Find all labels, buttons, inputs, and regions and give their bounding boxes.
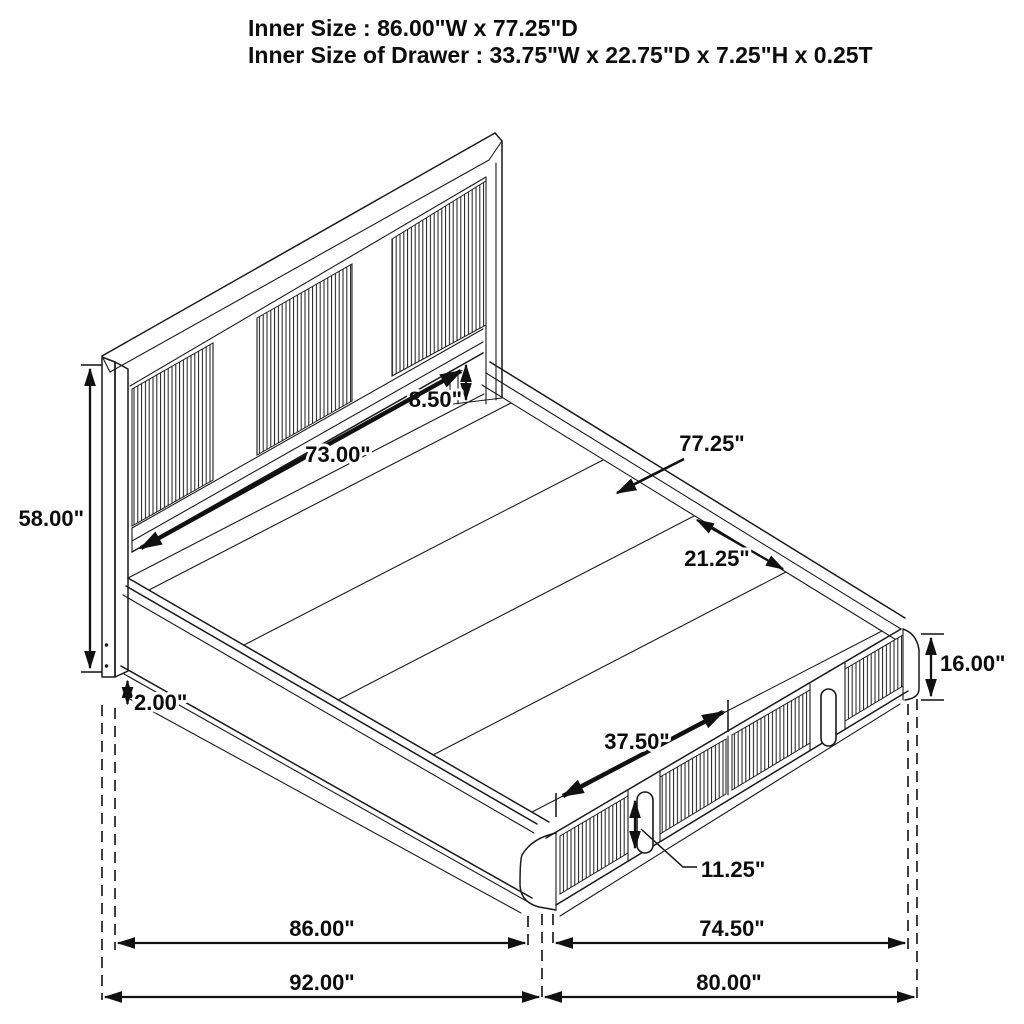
headboard-slat-panel-left: [132, 343, 213, 526]
right-rail-top-edge: [490, 362, 905, 618]
dim-foot-inner-width: 74.50": [556, 916, 905, 943]
dim-label-1125: 11.25": [701, 857, 765, 882]
dim-overall-depth: 80.00": [545, 970, 914, 997]
title-line-2: Inner Size of Drawer : 33.75"W x 22.75"D…: [248, 42, 873, 68]
dim-plank-width: 21.25": [684, 520, 783, 571]
front-leg-outline: [520, 833, 556, 910]
post-peg-dot: [105, 664, 108, 667]
top-rail-bevel-inner: [489, 141, 502, 160]
headboard-left-post: [102, 357, 128, 677]
drawer-handle-right: [821, 689, 836, 746]
drawer-slats: [560, 796, 628, 894]
dim-tick: [81, 365, 102, 672]
left-side-rail: [121, 586, 537, 913]
dim-label-2125: 21.25": [684, 546, 749, 571]
dim-label-86: 86.00": [289, 916, 354, 941]
drawer-handle-left: [637, 792, 653, 853]
bed-dimension-diagram: Inner Size : 86.00"W x 77.25"D Inner Siz…: [0, 0, 1024, 1024]
dim-label-2: 2.00": [134, 690, 187, 715]
plank-line: [244, 460, 603, 645]
dim-label-7450: 74.50": [699, 916, 764, 941]
dim-handle-height: 11.25": [635, 801, 765, 882]
dim-label-80: 80.00": [696, 970, 761, 995]
dim-overall-width: 92.00": [105, 970, 539, 997]
right-rail-inner-edge: [482, 385, 898, 641]
drawer-slats: [660, 739, 726, 834]
right-corner-post: [903, 629, 919, 700]
headboard-slat-panel-right: [392, 181, 486, 376]
dim-label-7725: 77.25": [679, 431, 744, 456]
headboard-slat-panel-middle: [257, 264, 352, 455]
dim-label-92: 92.00": [289, 970, 354, 995]
dim-base-height: 16.00": [921, 634, 1005, 700]
top-rail-bevel: [495, 133, 502, 141]
dim-label-58: 58.00": [19, 506, 84, 531]
front-corner-leg: [520, 833, 556, 910]
foot-face-top-edge: [546, 629, 901, 838]
right-side-rail: [482, 362, 905, 641]
dim-label-16: 16.00": [940, 651, 1005, 676]
right-rail-mid-edge: [486, 373, 901, 629]
dim-label-73: 73.00": [305, 442, 370, 467]
corner-post-outline: [903, 629, 919, 700]
plinth-recess-line: [128, 698, 521, 913]
post-peg-dot: [105, 643, 108, 646]
title-block: Inner Size : 86.00"W x 77.25"D Inner Siz…: [248, 15, 873, 68]
left-rail-rim-1: [126, 586, 537, 824]
diagram-svg: Inner Size : 86.00"W x 77.25"D Inner Siz…: [0, 0, 1024, 1024]
dim-label-850: 8.50": [409, 387, 462, 412]
dim-inner-depth: 77.25": [617, 431, 745, 493]
dim-label-3750: 37.50": [604, 729, 669, 754]
dim-inner-width: 86.00": [118, 916, 525, 943]
dim-headboard-height: 58.00": [19, 365, 102, 672]
bed-drawing: [102, 133, 919, 916]
left-post-front: [102, 357, 115, 677]
title-line-1: Inner Size : 86.00"W x 77.25"D: [248, 15, 578, 41]
plank-line: [338, 516, 694, 700]
left-post-side: [115, 362, 128, 677]
